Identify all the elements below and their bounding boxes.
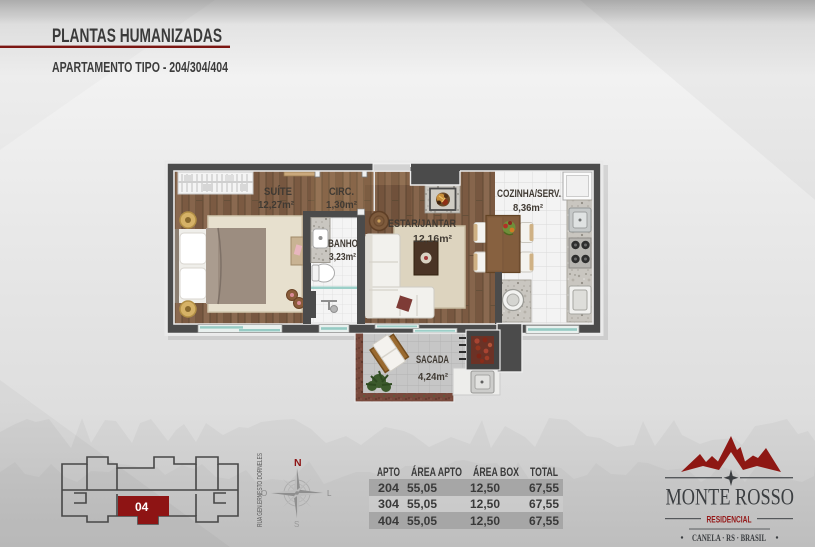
svg-text:BANHO: BANHO (328, 238, 358, 250)
svg-text:55,05: 55,05 (407, 499, 438, 511)
svg-text:4,24m²: 4,24m² (418, 371, 448, 383)
svg-text:CANELA · RS · BRASIL: CANELA · RS · BRASIL (692, 534, 766, 544)
svg-text:L: L (327, 489, 332, 498)
svg-text:ESTAR/JANTAR: ESTAR/JANTAR (388, 218, 456, 230)
svg-text:304: 304 (378, 499, 400, 511)
svg-text:ÁREA APTO: ÁREA APTO (411, 466, 462, 479)
svg-text:TOTAL: TOTAL (530, 467, 558, 479)
svg-text:12,16m²: 12,16m² (413, 233, 453, 245)
svg-text:PLANTAS HUMANIZADAS: PLANTAS HUMANIZADAS (52, 25, 222, 47)
svg-text:55,05: 55,05 (407, 483, 438, 495)
svg-text:8,36m²: 8,36m² (513, 202, 543, 214)
svg-text:3,23m²: 3,23m² (329, 251, 356, 263)
svg-text:SUÍTE: SUÍTE (264, 185, 292, 198)
svg-text:55,05: 55,05 (407, 516, 438, 528)
svg-text:N: N (294, 457, 302, 469)
svg-text:67,55: 67,55 (529, 499, 560, 511)
svg-text:S: S (294, 520, 299, 529)
svg-text:12,27m²: 12,27m² (258, 199, 294, 211)
svg-text:67,55: 67,55 (529, 483, 560, 495)
svg-text:404: 404 (378, 516, 400, 528)
svg-text:204: 204 (378, 483, 400, 495)
svg-text:RESIDENCIAL: RESIDENCIAL (707, 515, 752, 525)
svg-text:12,50: 12,50 (470, 499, 500, 511)
svg-text:APTO: APTO (377, 467, 400, 479)
svg-text:67,55: 67,55 (529, 516, 560, 528)
svg-text:MONTE ROSSO: MONTE ROSSO (666, 485, 795, 511)
svg-text:ÁREA BOX: ÁREA BOX (473, 466, 519, 479)
svg-text:12,50: 12,50 (470, 516, 500, 528)
svg-text:CIRC.: CIRC. (329, 186, 354, 198)
svg-text:APARTAMENTO TIPO - 204/304/404: APARTAMENTO TIPO - 204/304/404 (52, 60, 228, 76)
svg-text:12,50: 12,50 (470, 483, 500, 495)
svg-text:COZINHA/SERV.: COZINHA/SERV. (497, 188, 561, 200)
svg-text:1,30m²: 1,30m² (326, 199, 357, 211)
svg-text:04: 04 (135, 500, 149, 514)
svg-text:O: O (261, 489, 267, 498)
svg-text:SACADA: SACADA (416, 354, 449, 366)
